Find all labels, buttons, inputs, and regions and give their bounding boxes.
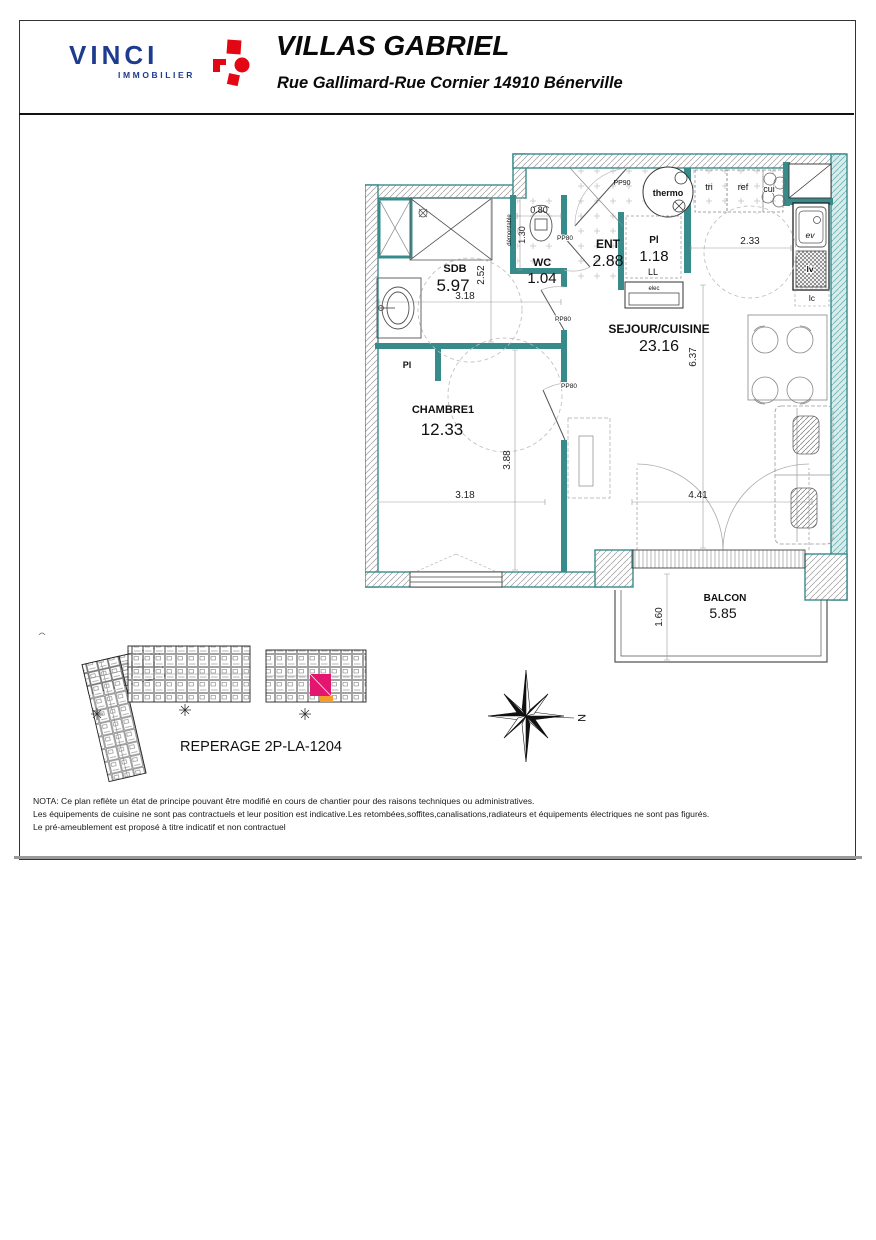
- vinci-immobilier-label: IMMOBILIER: [69, 70, 195, 80]
- room-label-ent: ENT: [596, 237, 621, 251]
- header: VINCI IMMOBILIER VILLAS GABRIEL Rue Gall…: [19, 20, 854, 115]
- tri-label: tri: [705, 182, 713, 192]
- balcony-french-doors: [637, 464, 809, 550]
- nota-line-1: NOTA: Ce plan reflète un état de princip…: [33, 795, 838, 808]
- ref-label: ref: [738, 182, 749, 192]
- room-area-pl: 1.18: [639, 248, 668, 265]
- sofa-icon: [775, 406, 833, 544]
- kitchen-sink-column: ev lv lc: [793, 203, 829, 306]
- pp80-label-chambre: PP80: [561, 383, 577, 390]
- nota-block: NOTA: Ce plan reflète un état de princip…: [33, 795, 838, 834]
- pp80-label-wc: PP80: [557, 235, 573, 242]
- room-area-chambre: 12.33: [421, 420, 464, 439]
- shaft-icon: [379, 199, 411, 257]
- dim-wc-width: 0.80: [530, 205, 548, 215]
- vinci-logo: VINCI IMMOBILIER: [69, 42, 249, 108]
- ll-label: LL: [648, 267, 658, 277]
- dim-sejour-height: 6.37: [688, 347, 699, 367]
- keyplan-building-c: [266, 650, 366, 702]
- room-area-wc: 1.04: [527, 270, 556, 287]
- chair-icon: [787, 326, 813, 353]
- room-label-sejour: SEJOUR/CUISINE: [608, 322, 709, 336]
- room-area-sejour: 23.16: [639, 338, 679, 355]
- floor-plan: thermo tri ref cui ev lv lc: [365, 150, 855, 668]
- elec-box-icon: elec: [625, 282, 683, 308]
- room-area-ent: 2.88: [592, 253, 623, 270]
- lv-label: lv: [806, 264, 813, 274]
- room-label-wc: WC: [533, 257, 551, 269]
- keyplan-building-b: [128, 646, 250, 702]
- dim-balcon-depth: 1.60: [654, 607, 665, 627]
- elec-label: elec: [648, 286, 659, 292]
- page-frame-bottom-rule: [14, 856, 862, 859]
- dim-sdb-height: 2.52: [476, 265, 487, 285]
- closet-pl: Pl 1.18 LL: [626, 216, 681, 278]
- desk-icon: [568, 418, 610, 498]
- dim-wc-height: 1.30: [517, 226, 527, 244]
- bathroom-sink-icon: [377, 278, 421, 338]
- vinci-logo-mark-icon: [209, 34, 255, 94]
- pp80-label-sdb: PP80: [555, 316, 571, 323]
- cui-label: cui: [763, 184, 775, 194]
- project-title: VILLAS GABRIEL: [276, 30, 509, 62]
- room-label-balcon: BALCON: [704, 593, 747, 604]
- room-label-sdb: SDB: [443, 263, 466, 275]
- pp90-label: PP90: [613, 180, 630, 187]
- ev-label: ev: [806, 230, 816, 240]
- lc-label: lc: [809, 293, 816, 303]
- room-area-balcon: 5.85: [709, 605, 736, 621]
- nota-line-3: Le pré-ameublement est proposé à titre i…: [33, 821, 838, 834]
- dining-table-icon: [748, 315, 827, 404]
- dim-sdb-width: 3.18: [455, 291, 475, 302]
- dim-sejour-width: 4.41: [688, 490, 708, 501]
- closet-label-chambre: Pl: [403, 360, 412, 370]
- chair-icon: [752, 326, 778, 353]
- duct-icon: [789, 164, 831, 198]
- nota-line-2: Les équipements de cuisine ne sont pas c…: [33, 808, 838, 821]
- project-address: Rue Gallimard-Rue Cornier 14910 Bénervil…: [277, 74, 623, 93]
- reperage-mark: [39, 633, 45, 635]
- dim-kitchen-width: 2.33: [740, 236, 760, 247]
- shower-icon: [410, 198, 492, 260]
- bedroom-door: [543, 383, 565, 440]
- thermo-label: thermo: [653, 188, 684, 198]
- reperage-section: REPERAGE 2P-LA-1204: [33, 628, 393, 786]
- north-label: N: [575, 714, 587, 722]
- plan-sheet: VINCI IMMOBILIER VILLAS GABRIEL Rue Gall…: [0, 0, 876, 1240]
- reperage-title: REPERAGE 2P-LA-1204: [180, 739, 342, 755]
- bedroom-window-icon: [410, 554, 502, 587]
- sdb-door: [541, 287, 564, 330]
- dim-chambre-height: 3.88: [502, 450, 513, 470]
- demontable-label: démontable: [507, 214, 513, 246]
- thermo-icon: thermo: [643, 167, 693, 217]
- room-label-pl: Pl: [649, 235, 659, 246]
- compass-rose: N: [478, 668, 588, 768]
- dim-chambre-width: 3.18: [455, 490, 475, 501]
- highlighted-balcony: [320, 696, 333, 702]
- room-label-chambre: CHAMBRE1: [412, 404, 474, 416]
- balcony-window-icon: [632, 550, 805, 568]
